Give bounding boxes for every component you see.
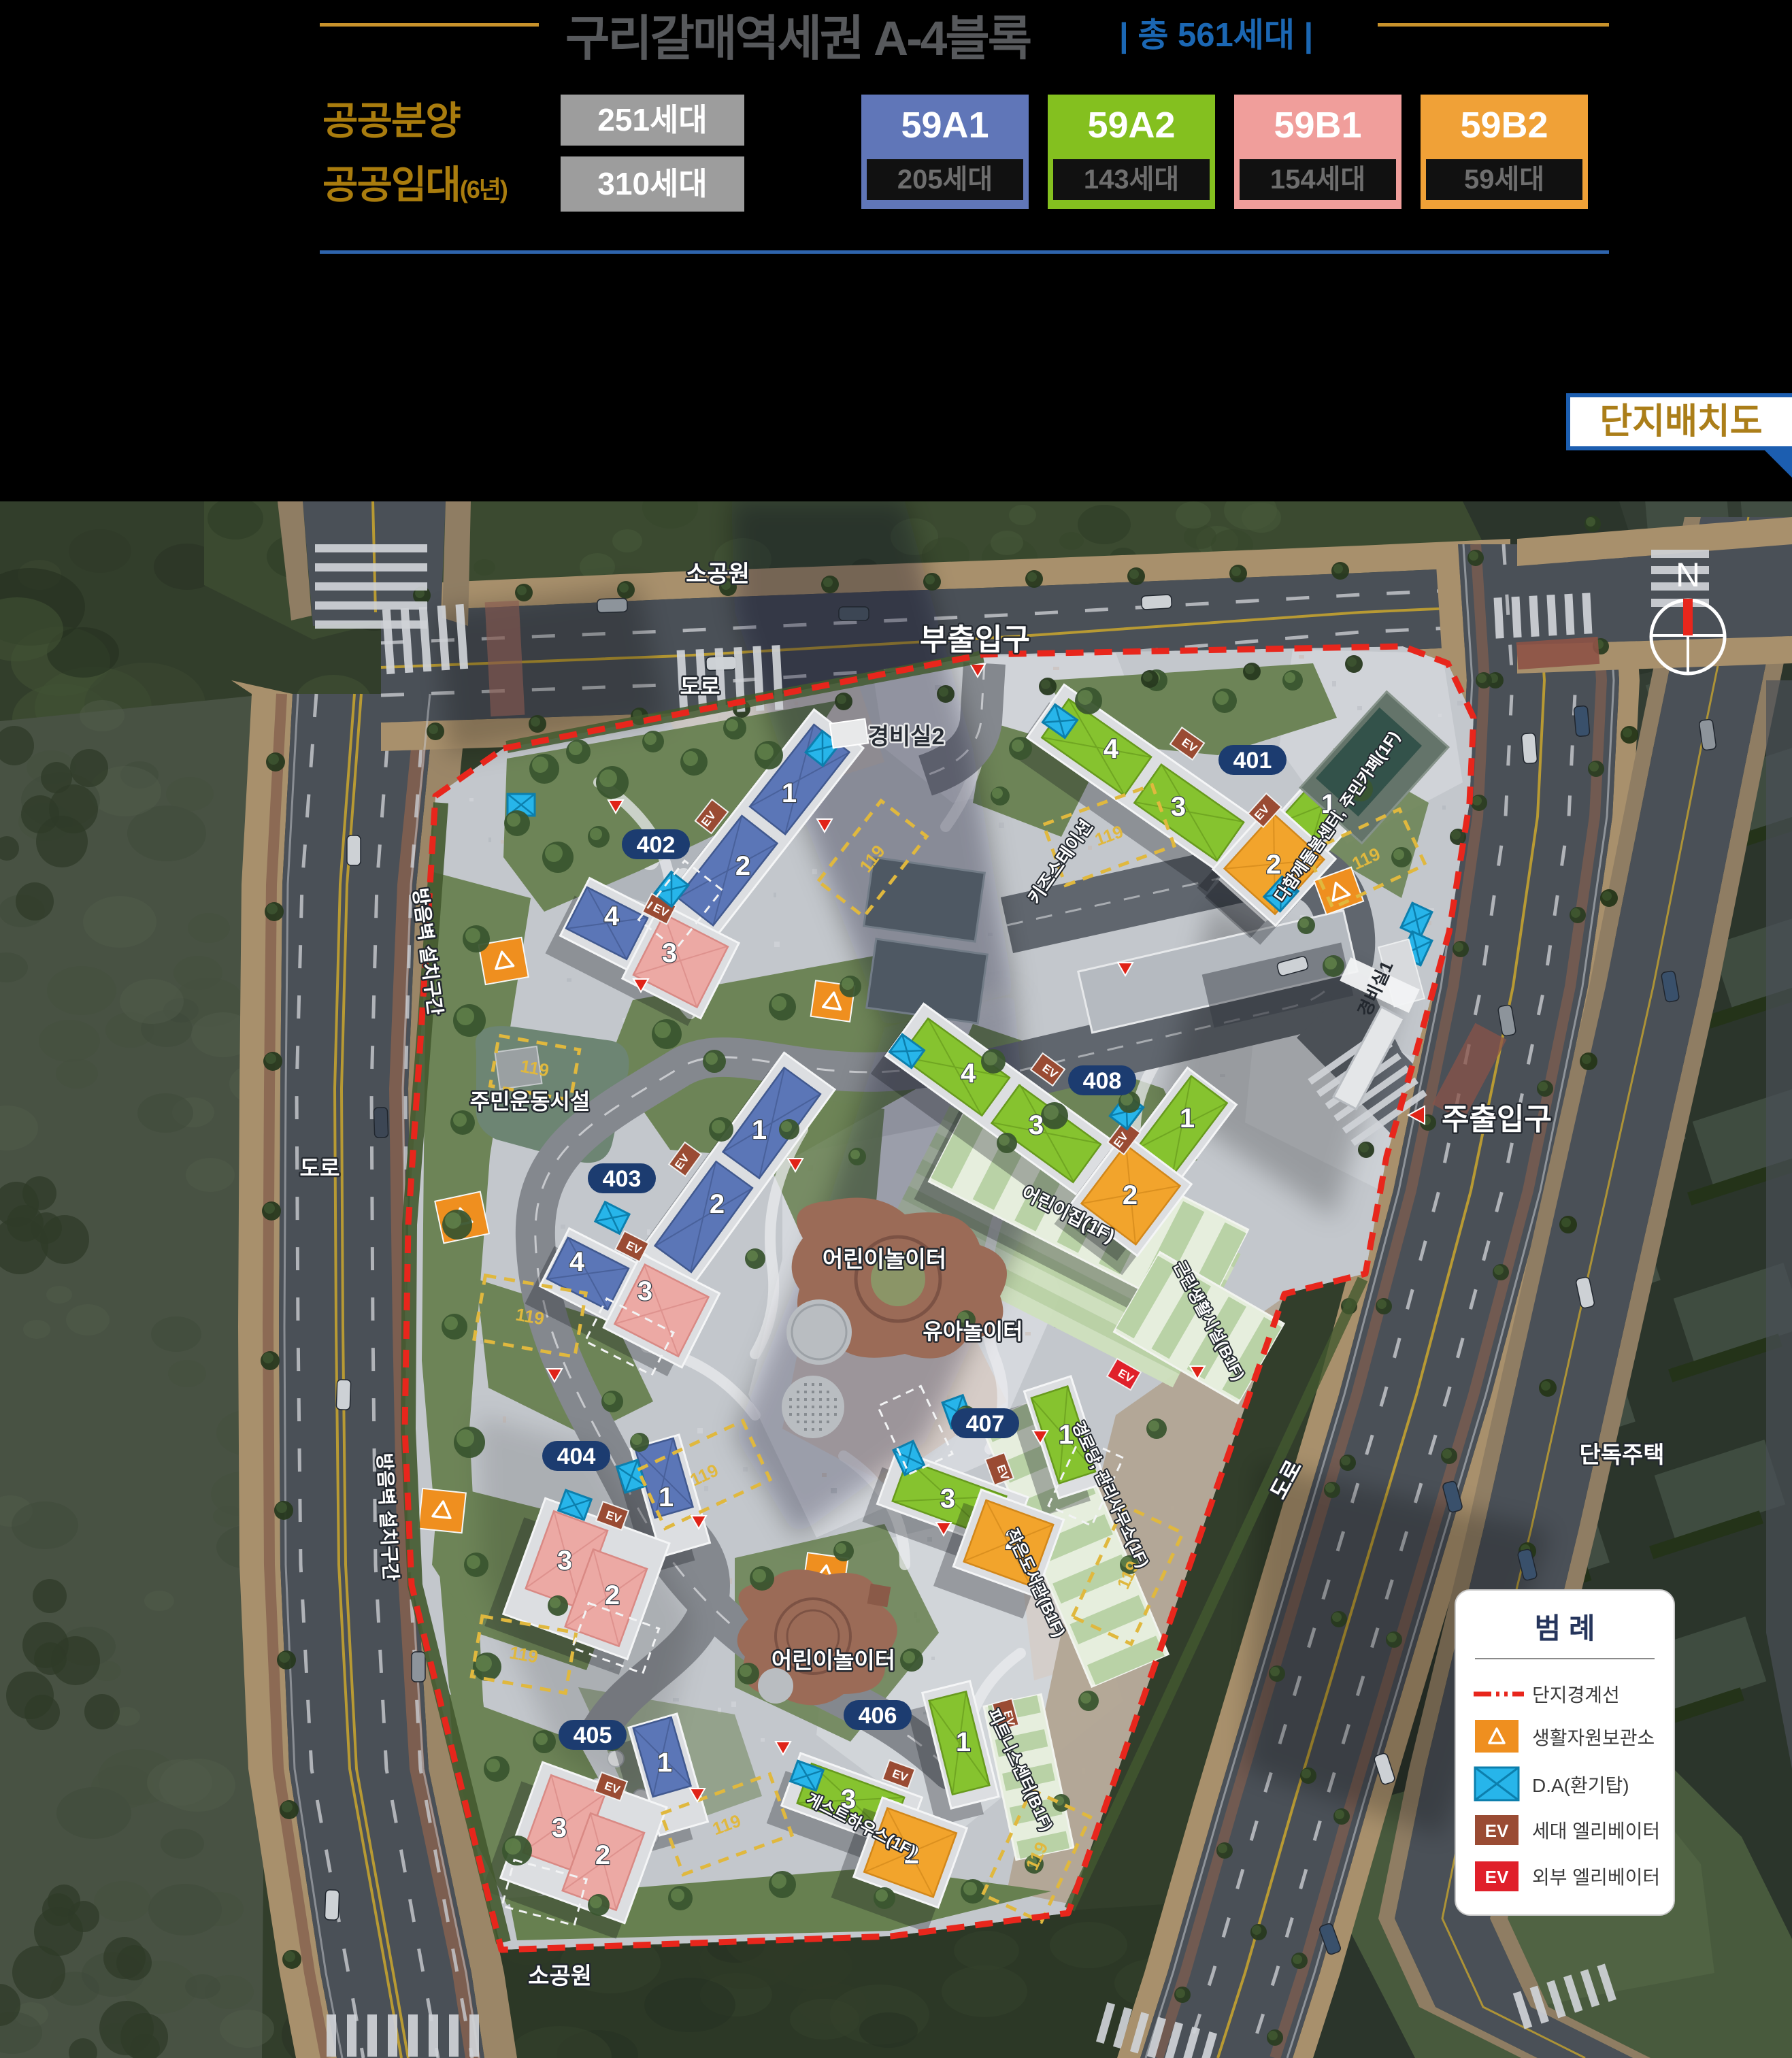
- svg-text:2: 2: [605, 1580, 620, 1610]
- svg-text:406: 406: [859, 1703, 897, 1729]
- svg-text:4: 4: [569, 1247, 585, 1277]
- svg-text:4: 4: [961, 1059, 976, 1089]
- svg-text:407: 407: [966, 1411, 1005, 1437]
- svg-text:4: 4: [604, 901, 620, 931]
- svg-text:소공원: 소공원: [528, 1963, 592, 1989]
- svg-text:3: 3: [557, 1546, 572, 1576]
- svg-text:3: 3: [637, 1276, 652, 1306]
- svg-text:외부 엘리베이터: 외부 엘리베이터: [1532, 1867, 1660, 1888]
- svg-text:단지경계선: 단지경계선: [1532, 1684, 1620, 1706]
- svg-text:2: 2: [1123, 1180, 1138, 1210]
- svg-text:405: 405: [574, 1723, 612, 1748]
- svg-text:범 례: 범 례: [1535, 1612, 1595, 1644]
- svg-text:2: 2: [1266, 850, 1281, 880]
- svg-text:어린이놀이터: 어린이놀이터: [771, 1648, 895, 1673]
- svg-text:EV: EV: [1485, 1867, 1509, 1887]
- svg-text:1: 1: [659, 1482, 674, 1512]
- svg-text:402: 402: [637, 832, 676, 858]
- svg-text:404: 404: [557, 1444, 596, 1470]
- svg-text:유아놀이터: 유아놀이터: [923, 1319, 1023, 1344]
- svg-text:2: 2: [710, 1189, 725, 1219]
- svg-text:3: 3: [1171, 792, 1186, 822]
- svg-text:3: 3: [940, 1484, 955, 1514]
- svg-text:세대 엘리베이터: 세대 엘리베이터: [1532, 1821, 1660, 1842]
- svg-text:주민운동시설: 주민운동시설: [470, 1089, 591, 1114]
- svg-text:1: 1: [956, 1727, 971, 1757]
- svg-text:생활자원보관소: 생활자원보관소: [1532, 1727, 1655, 1748]
- svg-text:도로: 도로: [300, 1156, 340, 1180]
- svg-text:3: 3: [1029, 1110, 1044, 1140]
- svg-text:401: 401: [1233, 748, 1272, 774]
- svg-text:주출입구: 주출입구: [1442, 1103, 1552, 1136]
- svg-text:경비실2: 경비실2: [868, 724, 945, 750]
- svg-text:2: 2: [595, 1840, 610, 1870]
- svg-text:3: 3: [552, 1813, 567, 1843]
- svg-text:부출입구: 부출입구: [920, 623, 1030, 657]
- svg-text:408: 408: [1083, 1068, 1122, 1094]
- svg-text:1: 1: [782, 778, 797, 808]
- svg-text:1: 1: [1180, 1103, 1195, 1133]
- svg-text:EV: EV: [1485, 1821, 1509, 1841]
- svg-text:3: 3: [662, 938, 677, 968]
- svg-text:1: 1: [752, 1115, 767, 1145]
- svg-text:4: 4: [1104, 734, 1119, 764]
- svg-text:403: 403: [603, 1166, 642, 1192]
- svg-text:도로: 도로: [680, 674, 720, 699]
- svg-text:단독주택: 단독주택: [1579, 1442, 1664, 1468]
- svg-text:소공원: 소공원: [686, 561, 750, 587]
- svg-text:D.A(환기탑): D.A(환기탑): [1532, 1775, 1629, 1796]
- svg-text:N: N: [1676, 556, 1700, 594]
- svg-text:1: 1: [657, 1748, 672, 1778]
- svg-text:2: 2: [735, 851, 750, 881]
- svg-text:어린이놀이터: 어린이놀이터: [823, 1246, 946, 1272]
